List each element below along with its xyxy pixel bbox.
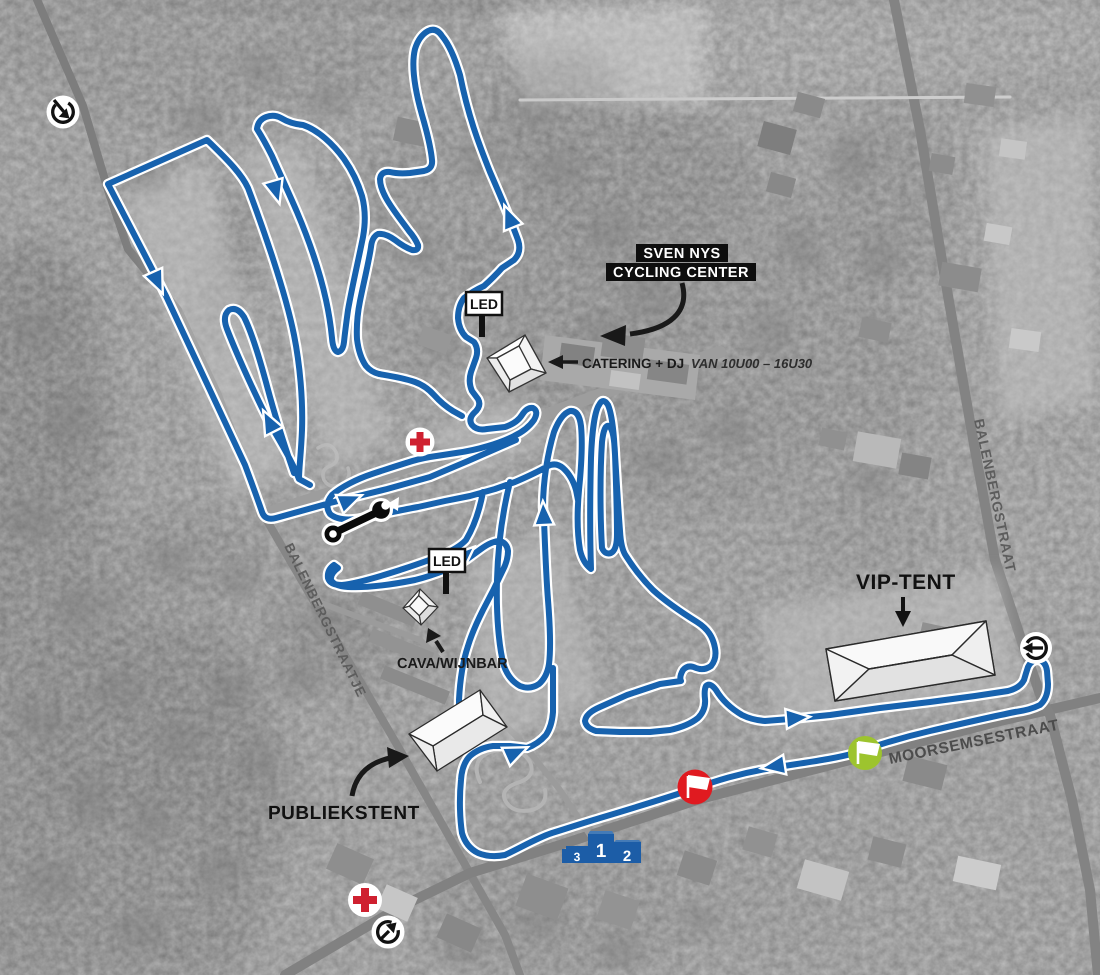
svg-text:VIP-TENT: VIP-TENT [856, 571, 956, 594]
svg-text:CYCLING CENTER: CYCLING CENTER [613, 265, 749, 281]
svg-text:PUBLIEKSTENT: PUBLIEKSTENT [268, 803, 420, 824]
svg-text:CAVA/WIJNBAR: CAVA/WIJNBAR [397, 656, 508, 672]
svg-text:VAN 10U00 – 16U30: VAN 10U00 – 16U30 [691, 356, 813, 371]
svg-text:3: 3 [574, 850, 581, 864]
svg-text:SVEN NYS: SVEN NYS [643, 246, 720, 262]
svg-text:LED: LED [433, 553, 461, 569]
svg-text:1: 1 [596, 841, 607, 862]
svg-text:2: 2 [623, 848, 631, 865]
svg-text:CATERING + DJ: CATERING + DJ [582, 356, 684, 371]
svg-text:LED: LED [470, 296, 498, 312]
